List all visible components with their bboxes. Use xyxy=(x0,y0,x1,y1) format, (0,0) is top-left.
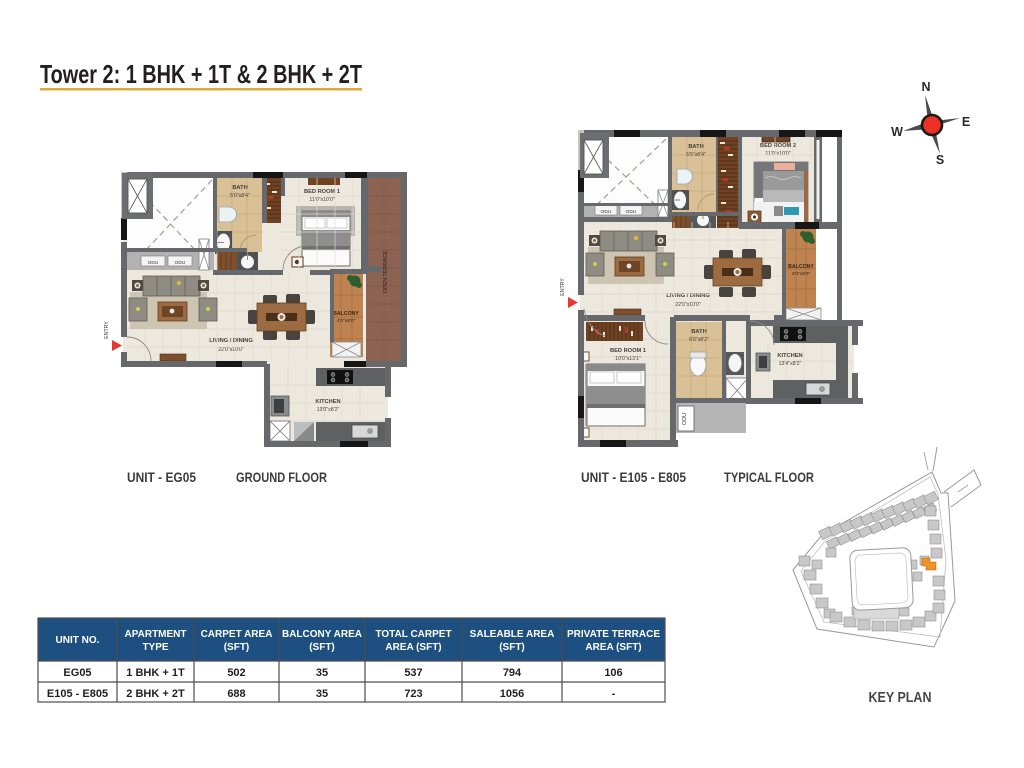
svg-text:35: 35 xyxy=(316,667,328,679)
svg-text:11'0"x10'0": 11'0"x10'0" xyxy=(765,151,790,157)
svg-text:ODU: ODU xyxy=(626,209,637,215)
svg-text:5'5"x8'4": 5'5"x8'4" xyxy=(686,152,706,158)
svg-text:-: - xyxy=(612,688,616,700)
svg-text:AREA (SFT): AREA (SFT) xyxy=(585,642,641,653)
svg-text:LIVING / DINING: LIVING / DINING xyxy=(209,338,253,344)
svg-text:OPEN TERRACE: OPEN TERRACE xyxy=(383,250,389,293)
svg-text:2 BHK + 2T: 2 BHK + 2T xyxy=(126,688,185,700)
svg-text:ODU: ODU xyxy=(175,260,186,266)
svg-text:ENTRY: ENTRY xyxy=(104,321,110,339)
svg-text:6'0"x8'2": 6'0"x8'2" xyxy=(689,337,709,343)
svg-text:BATH: BATH xyxy=(688,144,703,150)
svg-text:SALEABLE AREA: SALEABLE AREA xyxy=(470,629,555,640)
svg-text:4'0"x8'9": 4'0"x8'9" xyxy=(792,271,811,277)
svg-text:5'0"x8'4": 5'0"x8'4" xyxy=(230,193,250,199)
svg-text:TYPICAL FLOOR: TYPICAL FLOOR xyxy=(724,469,814,485)
svg-text:ODU: ODU xyxy=(148,260,159,266)
svg-text:794: 794 xyxy=(503,667,522,679)
svg-text:13'0"x8'2": 13'0"x8'2" xyxy=(317,407,340,413)
svg-text:688: 688 xyxy=(227,688,245,700)
svg-text:ENTRY: ENTRY xyxy=(560,278,566,296)
svg-text:AREA (SFT): AREA (SFT) xyxy=(385,642,441,653)
svg-text:10'0"x13'1": 10'0"x13'1" xyxy=(615,356,641,362)
svg-text:BALCONY: BALCONY xyxy=(788,264,814,270)
svg-text:11'0"x10'0": 11'0"x10'0" xyxy=(309,197,334,203)
svg-text:TOTAL CARPET: TOTAL CARPET xyxy=(375,629,451,640)
svg-text:S: S xyxy=(936,153,944,167)
svg-text:BALCONY: BALCONY xyxy=(333,311,359,317)
svg-text:BED ROOM 1: BED ROOM 1 xyxy=(610,348,646,354)
svg-text:1056: 1056 xyxy=(500,688,524,700)
svg-text:UNIT - E105 - E805: UNIT - E105 - E805 xyxy=(581,469,686,485)
svg-text:EG05: EG05 xyxy=(63,667,91,679)
svg-text:BATH: BATH xyxy=(232,185,247,191)
svg-text:E: E xyxy=(962,115,970,129)
svg-text:537: 537 xyxy=(404,667,422,679)
svg-text:KITCHEN: KITCHEN xyxy=(777,353,802,359)
svg-text:(SFT): (SFT) xyxy=(499,642,525,653)
svg-text:APARTMENT: APARTMENT xyxy=(124,629,186,640)
svg-text:(SFT): (SFT) xyxy=(224,642,250,653)
svg-text:PRIVATE TERRACE: PRIVATE TERRACE xyxy=(567,629,660,640)
svg-text:502: 502 xyxy=(227,667,245,679)
svg-text:CARPET AREA: CARPET AREA xyxy=(201,629,273,640)
svg-text:KEY PLAN: KEY PLAN xyxy=(869,690,932,706)
svg-text:TYPE: TYPE xyxy=(142,642,168,653)
svg-text:UNIT - EG05: UNIT - EG05 xyxy=(127,469,196,485)
svg-text:N: N xyxy=(921,80,930,94)
svg-text:BED ROOM 1: BED ROOM 1 xyxy=(304,189,340,195)
svg-text:(SFT): (SFT) xyxy=(309,642,335,653)
svg-text:4'0"x8'0": 4'0"x8'0" xyxy=(337,318,356,324)
svg-text:ODU: ODU xyxy=(682,413,688,425)
svg-text:W: W xyxy=(891,125,903,139)
svg-text:KITCHEN: KITCHEN xyxy=(315,399,340,405)
svg-text:13'4"x8'2": 13'4"x8'2" xyxy=(779,361,802,367)
svg-text:1 BHK + 1T: 1 BHK + 1T xyxy=(126,667,185,679)
svg-text:106: 106 xyxy=(604,667,622,679)
svg-text:ODU: ODU xyxy=(601,209,612,215)
svg-text:BALCONY AREA: BALCONY AREA xyxy=(282,629,362,640)
svg-text:UNIT NO.: UNIT NO. xyxy=(56,635,100,646)
svg-text:35: 35 xyxy=(316,688,328,700)
svg-text:E105 - E805: E105 - E805 xyxy=(47,688,108,700)
svg-text:22'0"x10'0": 22'0"x10'0" xyxy=(218,347,244,353)
svg-text:22'0"x10'0": 22'0"x10'0" xyxy=(675,302,701,308)
svg-text:GROUND FLOOR: GROUND FLOOR xyxy=(236,469,327,485)
svg-text:BATH: BATH xyxy=(691,329,706,335)
svg-text:BED ROOM 2: BED ROOM 2 xyxy=(760,143,796,149)
svg-text:Tower 2: 1 BHK + 1T & 2 BHK +: Tower 2: 1 BHK + 1T & 2 BHK + 2T xyxy=(40,59,362,89)
svg-text:723: 723 xyxy=(404,688,422,700)
